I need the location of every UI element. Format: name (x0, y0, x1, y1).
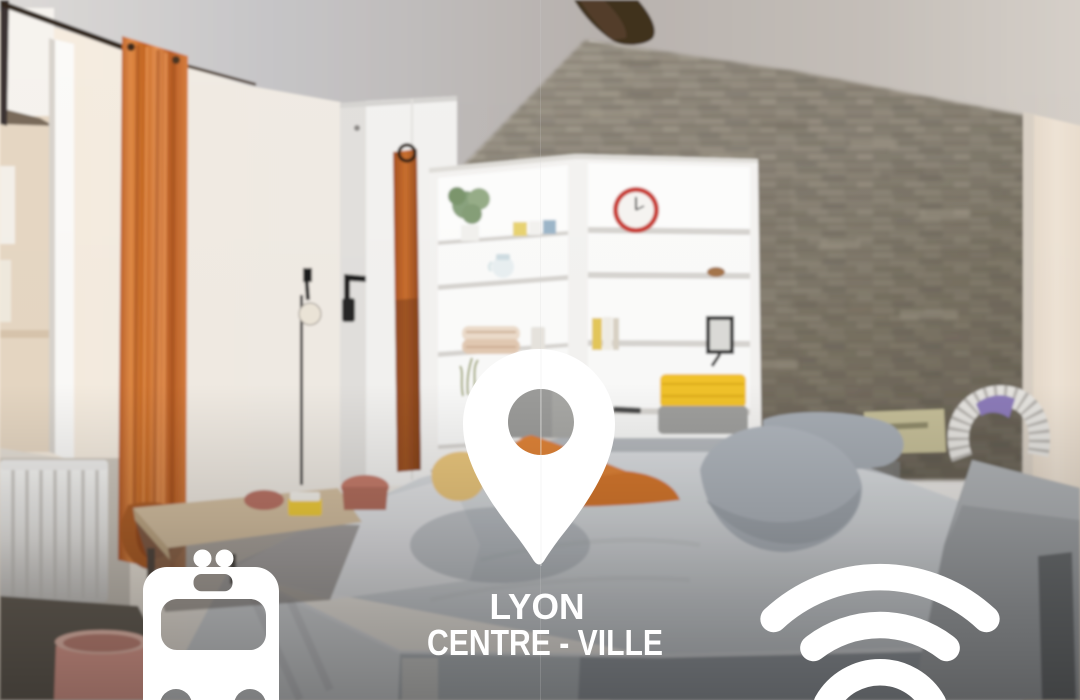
svg-text:CENTRE - VILLE: CENTRE - VILLE (427, 622, 663, 663)
svg-text:LYON: LYON (490, 586, 585, 627)
